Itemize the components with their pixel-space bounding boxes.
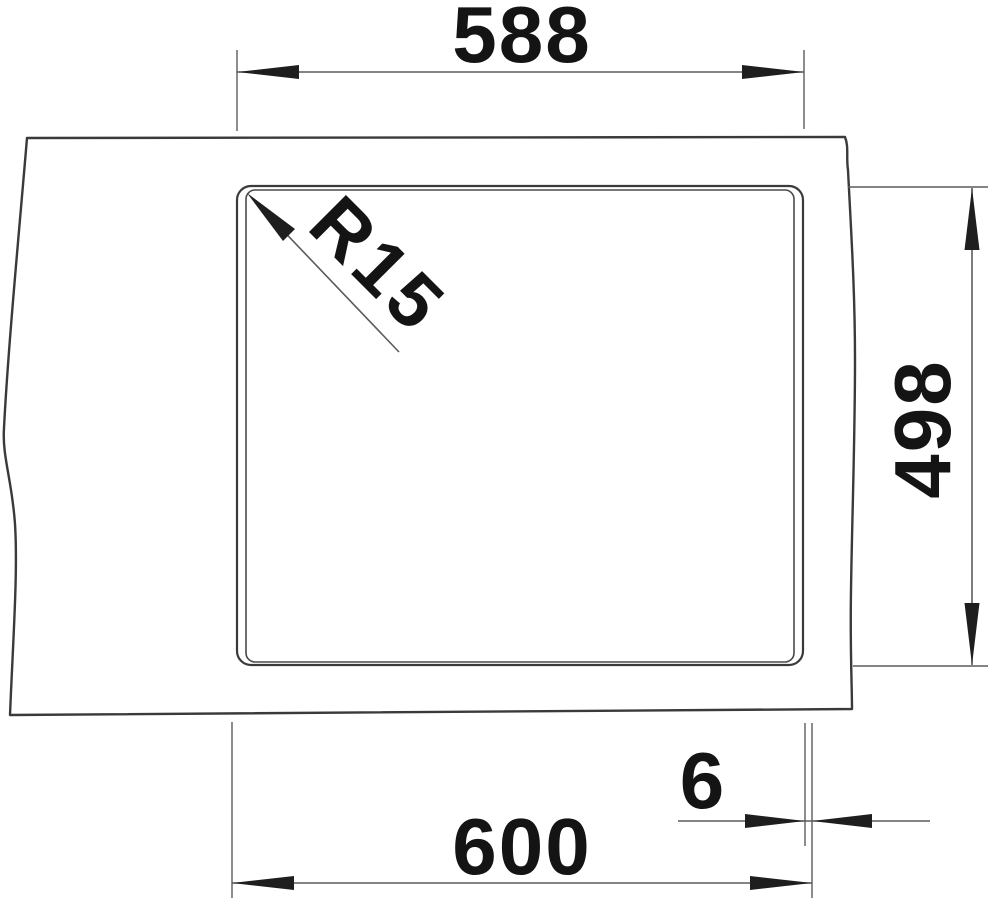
dim-edge-offset: 6 <box>678 723 930 846</box>
arrowhead-right <box>742 65 804 79</box>
arrowhead-up <box>965 188 980 250</box>
dim-label-overall-width: 600 <box>452 802 591 891</box>
arrowhead-down <box>965 603 980 665</box>
arrowhead-left <box>232 876 294 890</box>
arrowhead-right <box>750 876 812 890</box>
dim-cutout-depth: 498 <box>848 187 988 666</box>
sink-cutout-dimension-drawing: 588 498 600 6 <box>0 0 992 904</box>
dim-label-cutout-depth: 498 <box>878 359 967 498</box>
dim-label-cutout-width: 588 <box>452 0 591 79</box>
arrowhead-left <box>237 65 299 79</box>
dim-cutout-width: 588 <box>237 0 804 131</box>
technical-drawing-canvas: 588 498 600 6 <box>0 0 992 904</box>
arrowhead-pointing-right <box>745 814 805 828</box>
arrowhead-pointing-left <box>812 814 872 828</box>
dim-label-edge-offset: 6 <box>680 736 727 825</box>
